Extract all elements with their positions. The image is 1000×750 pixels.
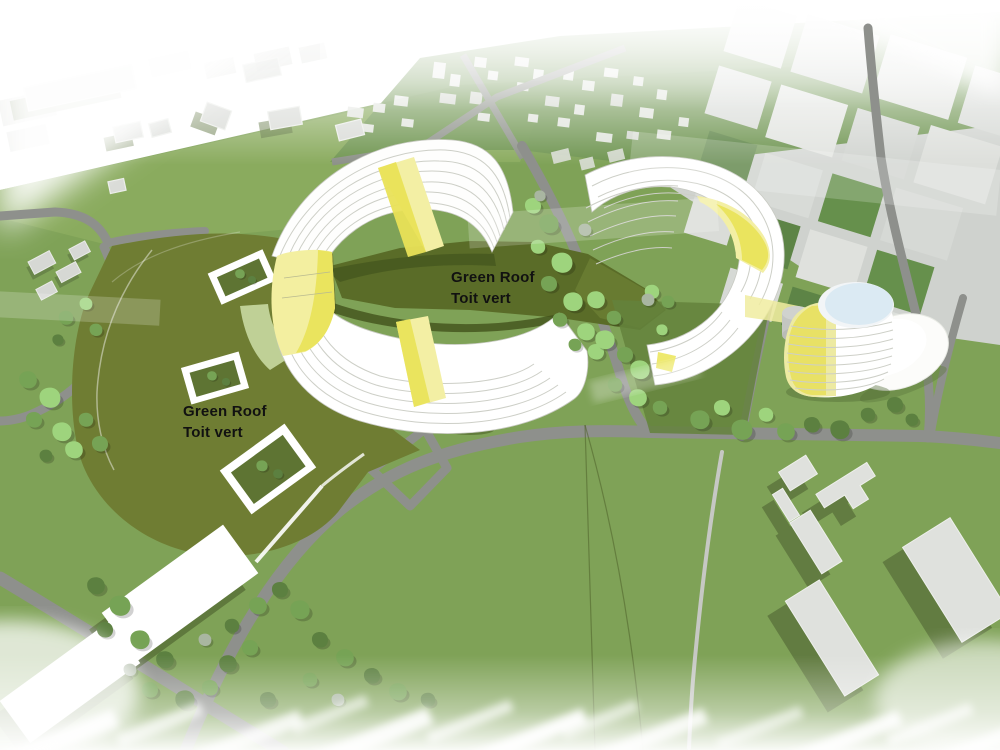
aerial-render-scene: .tL{fill:#9ed47d}.tM{fill:#76a355}.tD{fi…	[0, 0, 1000, 750]
label-line-fr: Toit vert	[183, 422, 267, 443]
label-line-en: Green Roof	[451, 267, 535, 288]
rendering-canvas: .tL{fill:#9ed47d}.tM{fill:#76a355}.tD{fi…	[0, 0, 1000, 750]
green-roof-label-park: Green Roof Toit vert	[183, 401, 267, 443]
tower-blue-roof	[825, 283, 893, 325]
label-line-fr: Toit vert	[451, 288, 535, 309]
label-line-en: Green Roof	[183, 401, 267, 422]
green-roof-label-courtyard: Green Roof Toit vert	[451, 267, 535, 309]
